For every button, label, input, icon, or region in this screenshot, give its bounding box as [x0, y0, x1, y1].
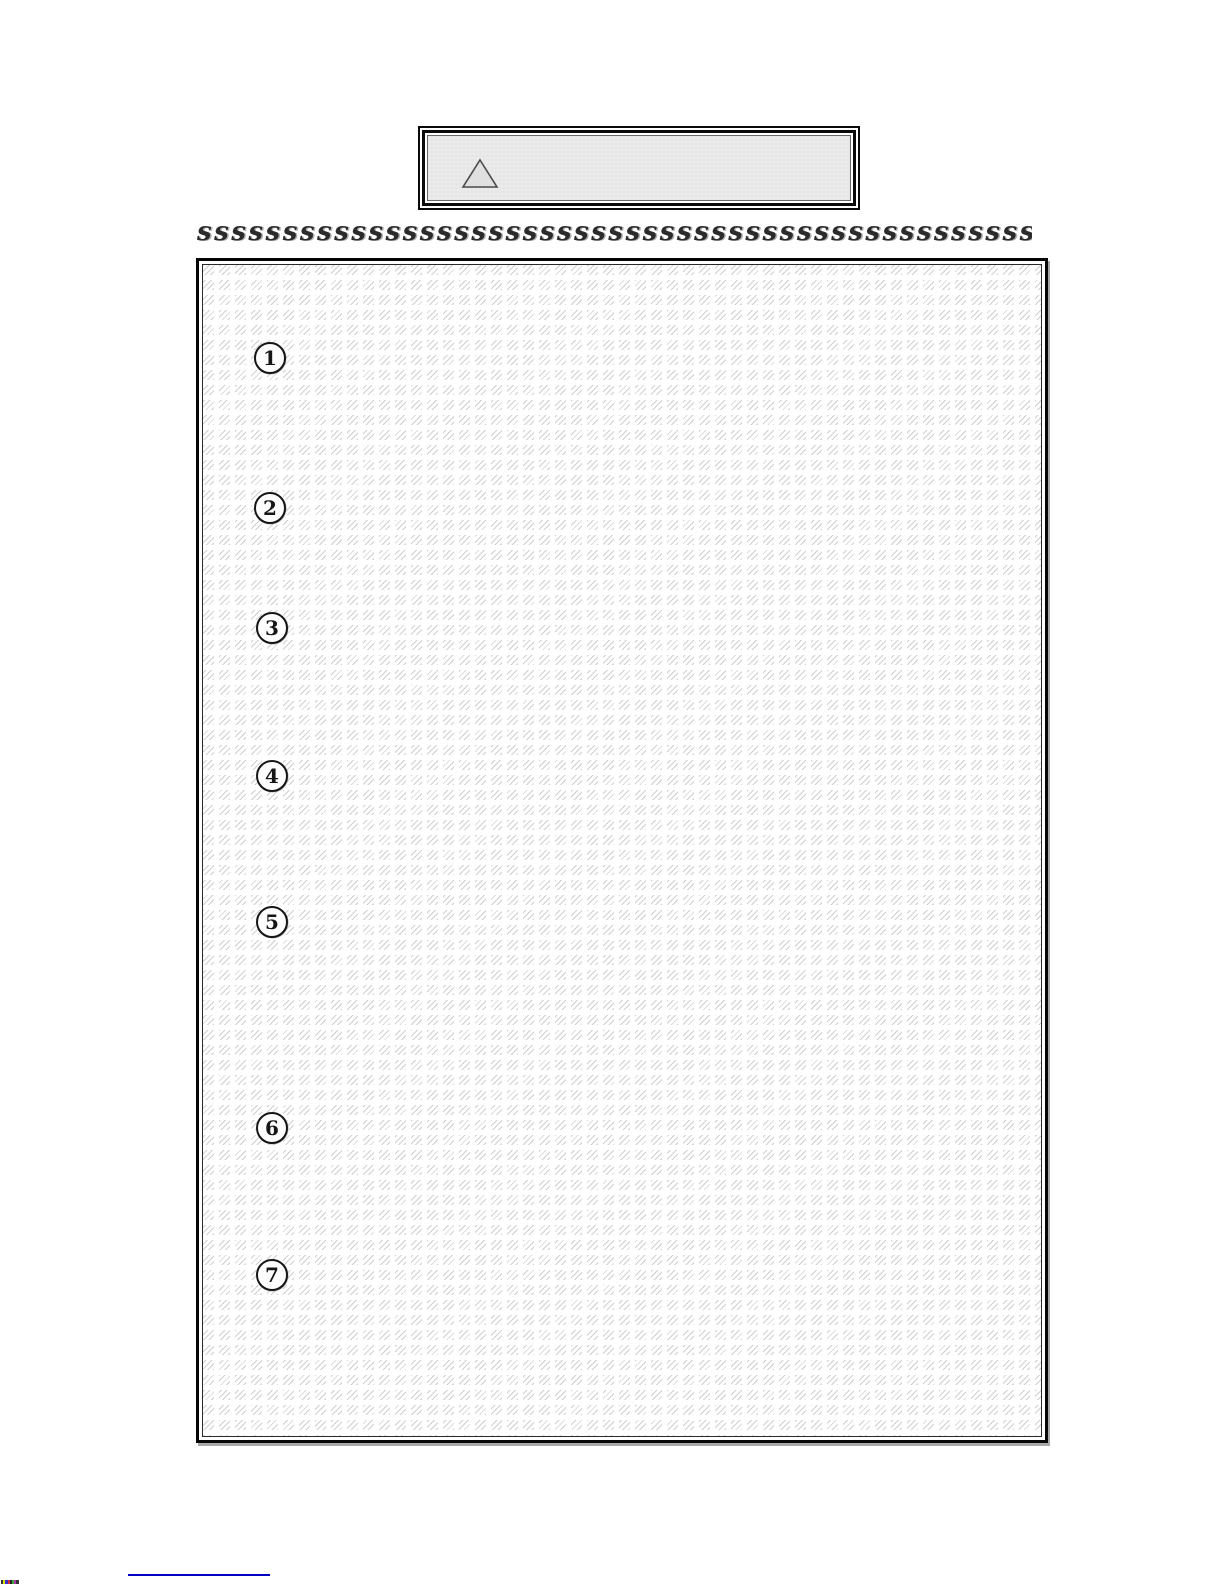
list-marker-number: 1	[263, 346, 277, 370]
list-marker-number: 3	[265, 616, 279, 640]
list-marker-number: 6	[265, 1116, 279, 1140]
scan-artifact-segment	[16, 1580, 18, 1584]
warning-triangle-icon	[460, 157, 500, 191]
list-marker-7: 7	[256, 1259, 288, 1291]
content-box	[196, 258, 1048, 1443]
list-marker-5: 5	[256, 906, 288, 938]
list-marker-3: 3	[256, 612, 288, 644]
list-marker-number: 7	[265, 1263, 279, 1287]
document-page: ssssssssssssssssssssssssssssssssssssssss…	[0, 0, 1225, 1585]
section-divider: ssssssssssssssssssssssssssssssssssssssss…	[197, 220, 1032, 246]
warning-box	[418, 126, 860, 210]
list-marker-number: 2	[263, 496, 277, 520]
warning-box-border	[422, 130, 856, 206]
list-marker-number: 5	[265, 910, 279, 934]
list-marker-2: 2	[254, 492, 286, 524]
list-marker-number: 4	[265, 764, 279, 788]
hatched-redacted-area	[202, 264, 1042, 1437]
list-marker-1: 1	[254, 342, 286, 374]
list-marker-4: 4	[256, 760, 288, 792]
footer-link-underline[interactable]	[128, 1574, 270, 1576]
list-marker-6: 6	[256, 1112, 288, 1144]
scan-artifact-strip	[1, 1580, 19, 1584]
warning-box-fill	[427, 135, 851, 201]
